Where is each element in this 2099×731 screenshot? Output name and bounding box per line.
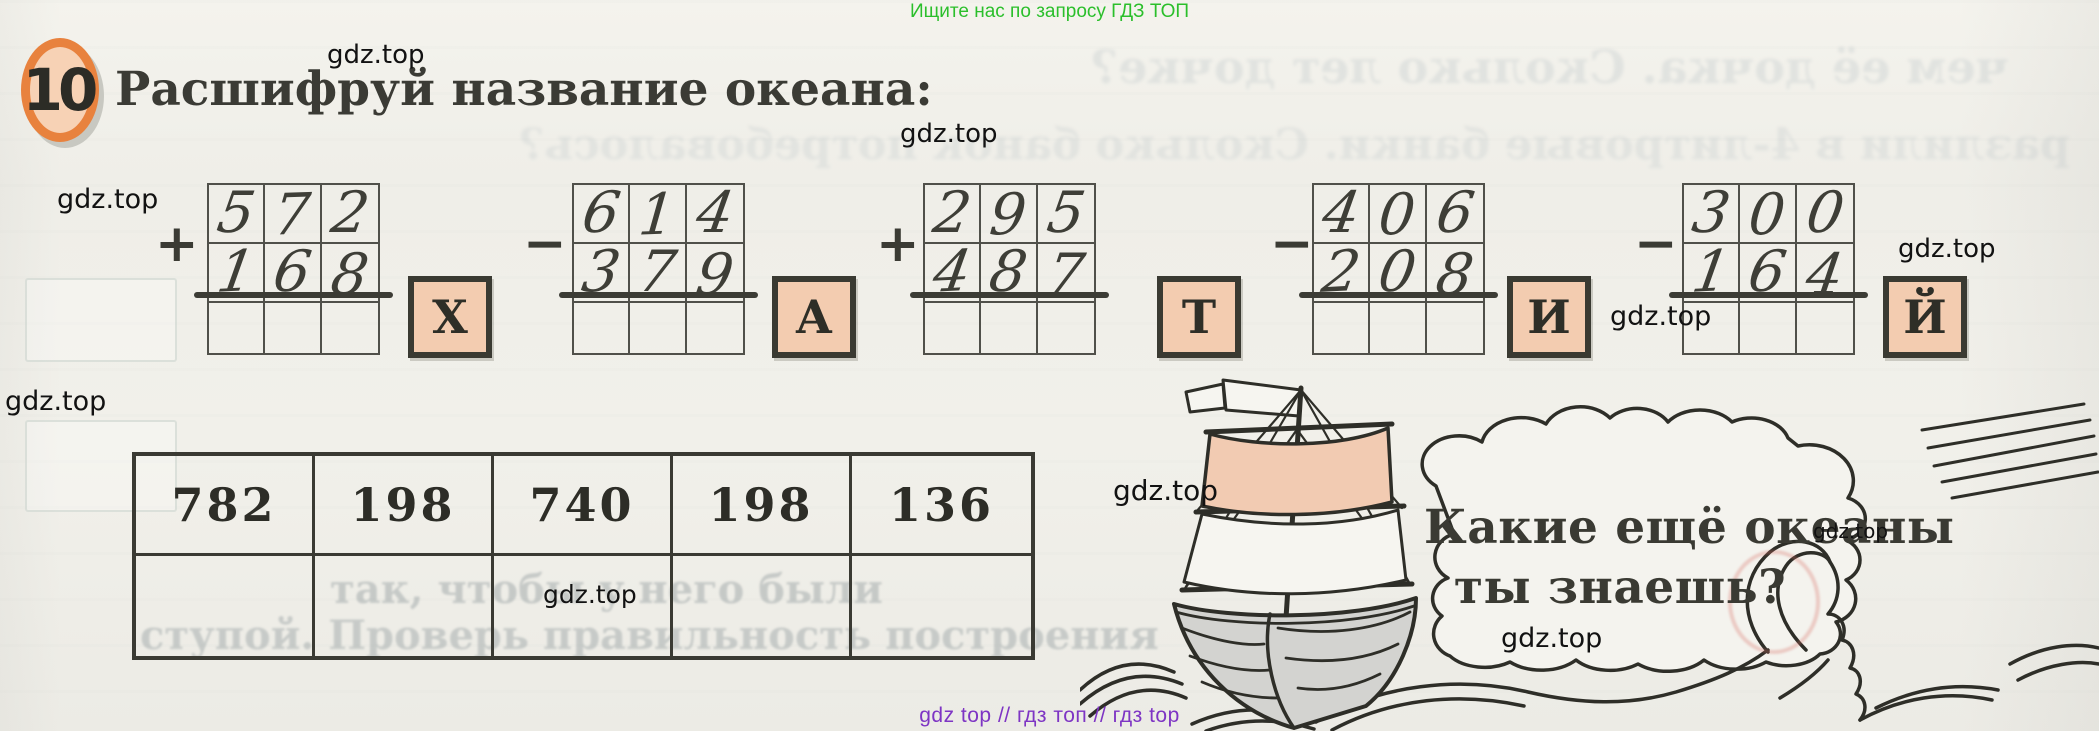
letter-label: Й [1903,290,1946,344]
answer-rule [910,292,1109,298]
letter-box: А [772,276,856,358]
gdz-watermark: gdz.top [543,580,637,609]
speech-line-2: ты знаешь? [1424,560,1816,615]
answer-cell [981,303,1037,353]
answer-empty-cell [852,556,1031,656]
grid-cell: 2 [322,185,378,244]
answer-rule [559,292,758,298]
digit-grid: 295487 [923,183,1096,355]
answer-rule [1299,292,1498,298]
gdz-watermark: gdz.top [1113,474,1218,507]
digit-grid: 614379 [572,183,745,355]
answer-cell [687,303,743,353]
digit-grid: 572168 [207,183,380,355]
letter-label: Т [1182,290,1216,344]
answer-rule [1669,292,1868,298]
textbook-page: Ищите нас по запросу ГДЗ ТОП 10 Расшифру… [0,0,2099,731]
answer-cell [1797,303,1853,353]
grid-cell: 6 [1427,185,1483,244]
answer-cell [1314,303,1370,353]
answer-cell [322,303,378,353]
answer-cell [925,303,981,353]
answer-cell [1370,303,1426,353]
letter-box: Т [1157,276,1241,358]
operator-sign: + [876,210,920,278]
answer-rule [194,292,393,298]
digit-grid: 406208 [1312,183,1485,355]
grid-cell: 9 [981,185,1037,244]
answer-cell [265,303,321,353]
cloud-hatch-lines [1922,404,2098,498]
gdz-watermark: gdz.top [1898,234,1996,264]
grid-cell: 0 [1797,185,1853,244]
answer-cell [209,303,265,353]
operator-sign: + [155,210,199,278]
grid-cell: 0 [1370,185,1426,244]
letter-box: Х [408,276,492,358]
answer-cell [1038,303,1094,353]
gdz-watermark: gdz.top [900,119,998,149]
ship-sail-lower [1184,510,1406,594]
bleed-text: чем её дочка. Сколько лет дочке? [1010,40,2090,94]
task-number: 10 [23,56,94,124]
gdz-watermark: gdz.top [1501,623,1602,654]
letter-box: И [1507,276,1591,358]
gdz-watermark: gdz.top [5,386,106,417]
grid-cell: 5 [209,185,265,244]
operator-sign: − [523,210,567,278]
answer-empty-cell [136,556,315,656]
wave [2010,645,2099,680]
letter-box: Й [1883,276,1967,358]
gdz-watermark: gdz.top [57,184,158,215]
bottom-banner-link[interactable]: gdz top // гдз топ // гдз top [0,704,2099,728]
answer-cell [1740,303,1796,353]
grid-cell: 6 [574,185,630,244]
grid-cell: 7 [265,185,321,244]
gdz-watermark: gdz.top [327,40,425,70]
bleed-answer-box [25,278,177,362]
bleed-text: разлили в 4-литровые банки. Сколько бано… [920,120,2070,170]
answer-cell [574,303,630,353]
answer-empty-cell [315,556,494,656]
grid-cell: 4 [1314,185,1370,244]
answer-cell [630,303,686,353]
answer-table: 782198740198136 [132,452,1035,660]
answer-number-cell: 198 [673,456,852,556]
grid-cell: 4 [687,185,743,244]
gdz-watermark: gdz.top [1813,519,1888,543]
letter-label: И [1527,290,1570,344]
grid-cell: 3 [1684,185,1740,244]
answer-empty-cell [673,556,852,656]
answer-cell [1427,303,1483,353]
gdz-watermark: gdz.top [1610,301,1711,332]
task-title: Расшифруй название океана: [115,62,933,117]
answer-number-cell: 198 [315,456,494,556]
grid-cell: 1 [630,185,686,244]
letter-label: А [795,290,832,344]
task-number-badge: 10 [21,38,99,142]
answer-number-cell: 136 [852,456,1031,556]
operator-sign: − [1270,210,1314,278]
grid-cell: 0 [1740,185,1796,244]
letter-label: Х [432,290,468,344]
operator-sign: − [1634,210,1678,278]
answer-number-cell: 782 [136,456,315,556]
answer-number-cell: 740 [494,456,673,556]
grid-cell: 5 [1038,185,1094,244]
top-banner-link[interactable]: Ищите нас по запросу ГДЗ ТОП [0,1,2099,23]
grid-cell: 2 [925,185,981,244]
